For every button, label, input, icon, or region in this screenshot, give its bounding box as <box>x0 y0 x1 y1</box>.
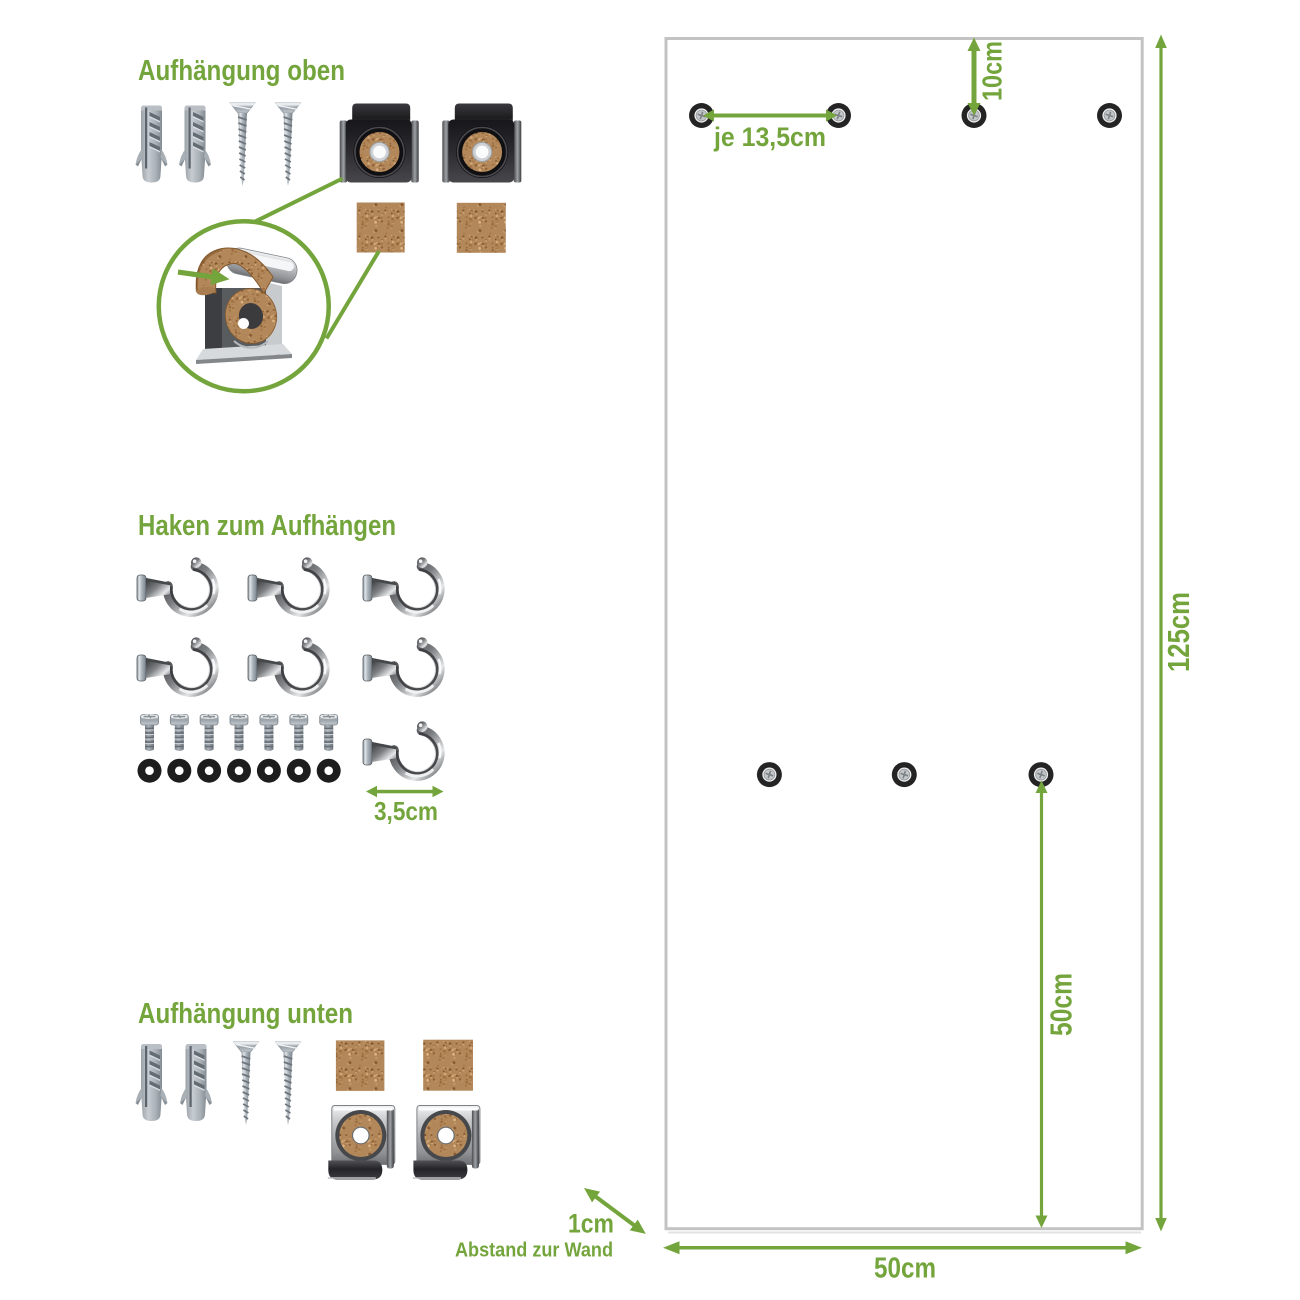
svg-text:Abstand zur Wand: Abstand zur Wand <box>455 1239 613 1262</box>
svg-text:1cm: 1cm <box>568 1209 614 1239</box>
svg-text:125cm: 125cm <box>1161 592 1196 672</box>
svg-text:50cm: 50cm <box>1044 973 1079 1036</box>
svg-text:Aufhängung unten: Aufhängung unten <box>138 998 353 1030</box>
svg-text:50cm: 50cm <box>874 1253 936 1285</box>
svg-text:je 13,5cm: je 13,5cm <box>713 122 826 152</box>
svg-text:Aufhängung oben: Aufhängung oben <box>138 55 345 87</box>
svg-text:3,5cm: 3,5cm <box>374 796 438 826</box>
svg-text:10cm: 10cm <box>977 41 1008 101</box>
svg-text:Haken zum Aufhängen: Haken zum Aufhängen <box>138 510 396 542</box>
